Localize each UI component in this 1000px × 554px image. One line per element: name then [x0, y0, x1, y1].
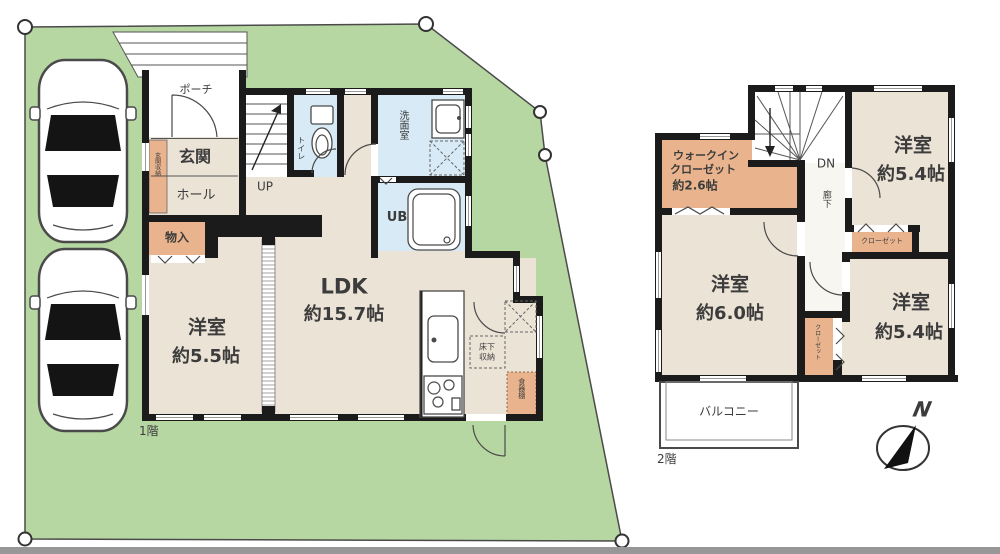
compass: [877, 425, 929, 470]
hall-label: ホール: [176, 189, 215, 203]
floor1-label: 1階: [139, 425, 159, 438]
stairs-down-label: DN: [817, 157, 835, 170]
bedroom-w-name-label: 洋室: [711, 275, 749, 296]
entrance-storage-label: 玄関収納: [153, 152, 160, 176]
entrance-label: 玄関: [179, 148, 211, 166]
wic-size-label: 約2.6帖: [672, 179, 717, 192]
bottom-edge-bar: [0, 547, 1000, 554]
kitchen-counter: [420, 291, 464, 417]
floor2-label: 2階: [657, 453, 677, 466]
car-top-view: [30, 60, 136, 242]
cupboard-label: 食器棚: [517, 378, 525, 399]
bedroom-ne-size-label: 約5.4帖: [877, 165, 945, 185]
closet-mid-label: クローゼット: [813, 324, 820, 360]
bedroom1f-size-label: 約5.5帖: [172, 347, 240, 367]
bedroom-se-name-label: 洋室: [892, 293, 930, 314]
bedroom1f-name-label: 洋室: [188, 318, 226, 339]
corridor-label: 廊下: [820, 190, 830, 208]
bathtub: [408, 189, 460, 250]
floorplan-canvas: ポーチ 玄関 ホール 玄関収納 UP トイレ 洗面室 UB 物入 LDK 約15…: [0, 0, 1000, 554]
porch-label: ポーチ: [180, 84, 213, 96]
ldk-size-label: 約15.7帖: [304, 305, 384, 325]
bedroom-se-size-label: 約5.4帖: [875, 323, 943, 343]
closet-ne-label: クローゼット: [861, 238, 903, 246]
floorplan-drawing: [0, 0, 1000, 554]
bath-label: UB: [387, 211, 407, 225]
car-top-view: [30, 249, 136, 431]
underfloor-storage-label: 床下収納: [477, 342, 497, 361]
toilet-label: トイレ: [296, 136, 305, 160]
wic-line1-label: ウォークイン: [673, 150, 739, 162]
balcony-label: バルコニー: [699, 405, 759, 418]
ldk-name-label: LDK: [320, 275, 367, 298]
bedroom-ne-name-label: 洋室: [894, 136, 932, 157]
storage-label: 物入: [165, 231, 189, 244]
bedroom-w-size-label: 約6.0帖: [696, 304, 764, 324]
stairs-up-label: UP: [257, 180, 273, 193]
wic-line2-label: クローゼット: [670, 164, 736, 176]
washroom-label: 洗面室: [397, 110, 408, 140]
washbasin: [432, 100, 464, 138]
